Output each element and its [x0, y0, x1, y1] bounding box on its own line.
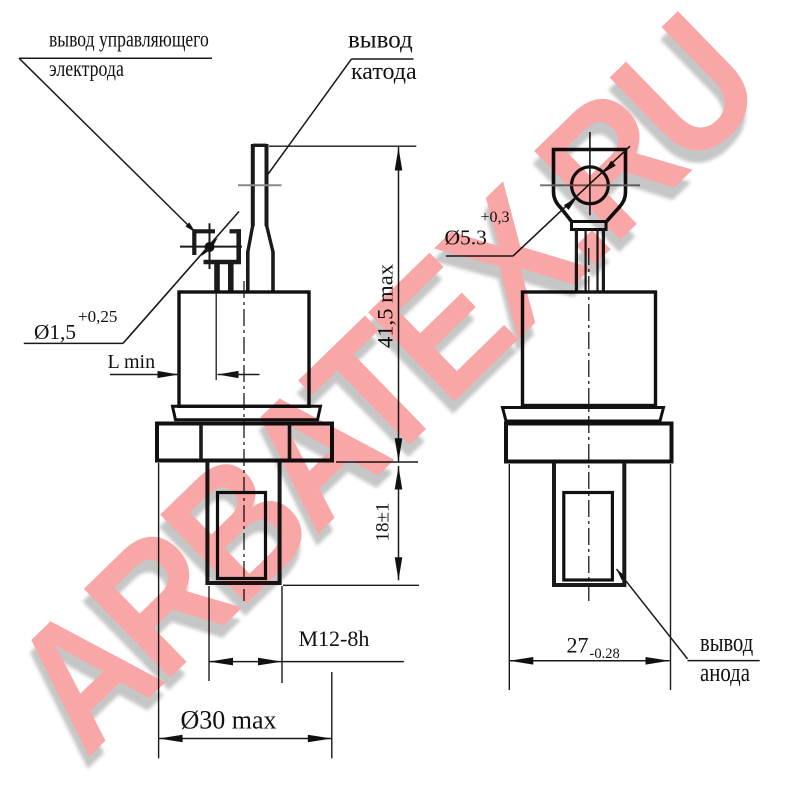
svg-text:L min: L min	[108, 351, 156, 373]
svg-text:-0.28: -0.28	[590, 646, 620, 662]
svg-text:катода: катода	[351, 59, 417, 85]
svg-text:+0,25: +0,25	[78, 307, 117, 326]
svg-text:вывод управляющего: вывод управляющего	[49, 27, 209, 52]
svg-text:Ø1,5: Ø1,5	[34, 320, 76, 344]
svg-text:вывод: вывод	[348, 27, 413, 54]
svg-text:27: 27	[567, 633, 589, 658]
svg-text:электрода: электрода	[49, 57, 124, 82]
svg-text:M12-8h: M12-8h	[299, 626, 370, 651]
svg-text:анода: анода	[700, 659, 750, 688]
svg-text:Ø30 max: Ø30 max	[181, 706, 277, 735]
svg-text:вывод: вывод	[700, 629, 753, 658]
